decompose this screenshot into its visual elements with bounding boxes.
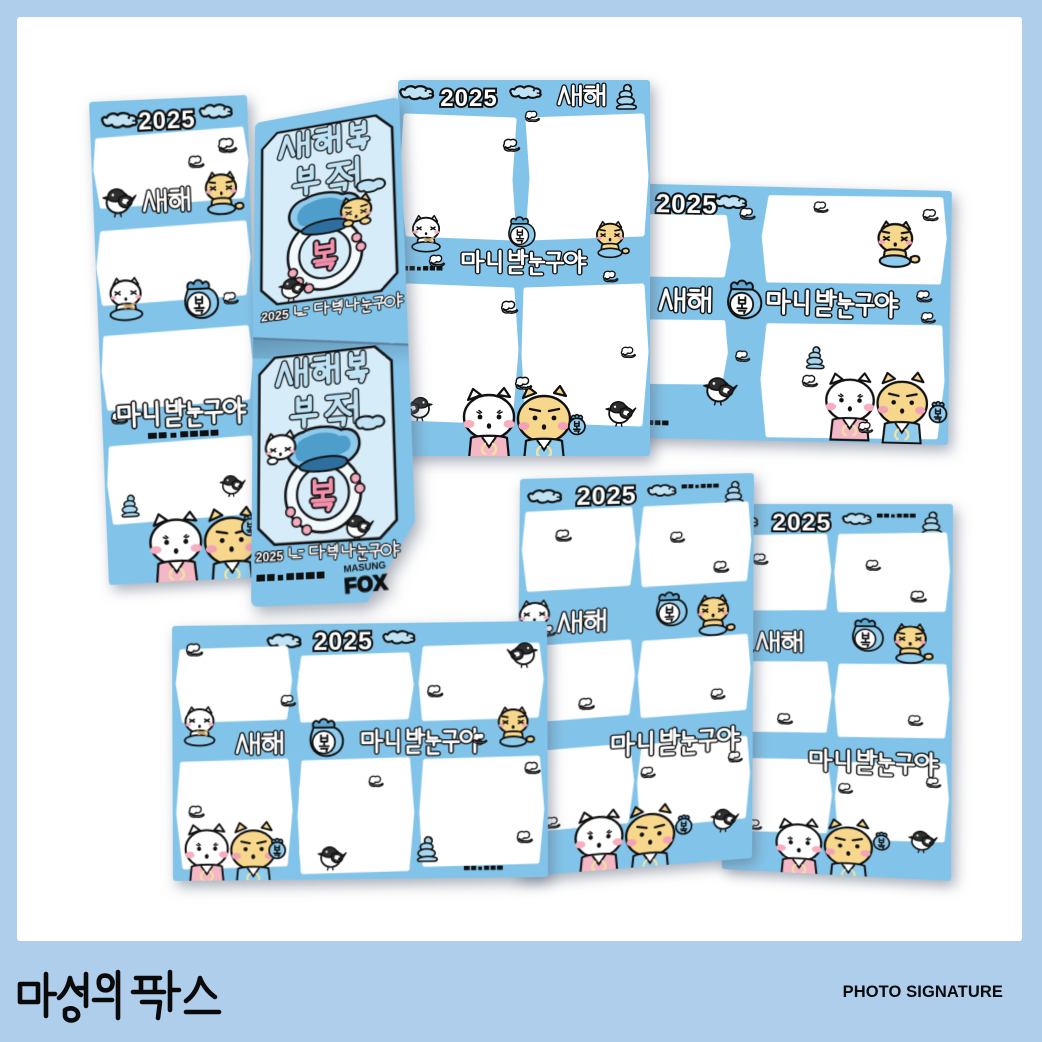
svg-text:2025: 2025 xyxy=(440,85,497,112)
svg-text:2025: 2025 xyxy=(314,628,374,656)
svg-text:FOX: FOX xyxy=(344,571,389,599)
